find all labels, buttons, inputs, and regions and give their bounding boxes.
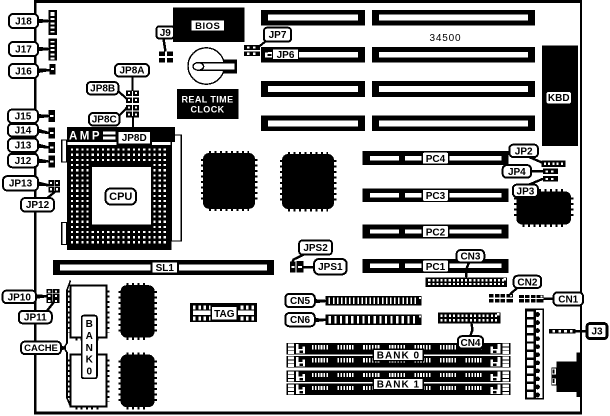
svg-text:JP13: JP13 (9, 179, 33, 190)
svg-text:JP8A: JP8A (119, 66, 144, 77)
svg-text:CN2: CN2 (517, 277, 537, 288)
svg-text:JP7: JP7 (269, 30, 287, 41)
svg-text:J9: J9 (160, 28, 172, 39)
svg-text:CN4: CN4 (460, 338, 480, 349)
svg-text:JP3: JP3 (517, 186, 535, 197)
svg-text:CPU: CPU (109, 191, 132, 203)
svg-text:JPS1: JPS1 (318, 262, 343, 273)
svg-text:SL1: SL1 (156, 263, 175, 274)
svg-text:JP4: JP4 (508, 167, 526, 178)
svg-text:REAL TIME: REAL TIME (182, 95, 234, 105)
svg-text:JPS2: JPS2 (303, 243, 328, 254)
svg-text:34500: 34500 (430, 33, 462, 44)
svg-text:J18: J18 (15, 16, 32, 27)
svg-text:JP11: JP11 (24, 313, 47, 324)
svg-text:AMP: AMP (69, 131, 102, 143)
svg-text:BANK 0: BANK 0 (377, 351, 420, 362)
svg-text:CN6: CN6 (290, 315, 310, 326)
svg-text:0: 0 (87, 367, 93, 378)
svg-text:JP6: JP6 (277, 50, 295, 61)
svg-text:BIOS: BIOS (195, 21, 220, 32)
svg-text:J17: J17 (15, 44, 32, 55)
svg-text:JP8D: JP8D (122, 133, 147, 144)
svg-text:KBD: KBD (548, 93, 570, 104)
svg-text:TAG: TAG (214, 309, 235, 320)
svg-text:J3: J3 (591, 326, 603, 337)
svg-text:PC4: PC4 (426, 154, 446, 165)
svg-text:PC2: PC2 (426, 227, 446, 238)
svg-text:JP8C: JP8C (92, 115, 117, 126)
svg-text:JP2: JP2 (515, 146, 533, 157)
svg-text:PC3: PC3 (426, 191, 446, 202)
svg-text:B: B (86, 319, 93, 330)
svg-text:N: N (86, 343, 93, 354)
svg-text:PC1: PC1 (426, 262, 446, 273)
svg-text:BANK 1: BANK 1 (377, 380, 420, 391)
svg-text:J16: J16 (15, 66, 32, 77)
svg-text:CN3: CN3 (460, 252, 480, 263)
svg-text:JP12: JP12 (26, 200, 50, 211)
svg-text:JP8B: JP8B (90, 84, 115, 95)
svg-text:CLOCK: CLOCK (191, 105, 225, 115)
svg-text:CN1: CN1 (558, 294, 578, 305)
svg-text:JP10: JP10 (8, 292, 32, 303)
svg-text:K: K (86, 355, 94, 366)
svg-text:J13: J13 (15, 141, 32, 152)
svg-text:J15: J15 (15, 112, 32, 123)
svg-text:CACHE: CACHE (24, 343, 58, 354)
svg-text:CN5: CN5 (290, 296, 310, 307)
svg-text:J14: J14 (15, 126, 32, 137)
svg-text:J12: J12 (15, 156, 32, 167)
svg-text:A: A (86, 331, 93, 342)
